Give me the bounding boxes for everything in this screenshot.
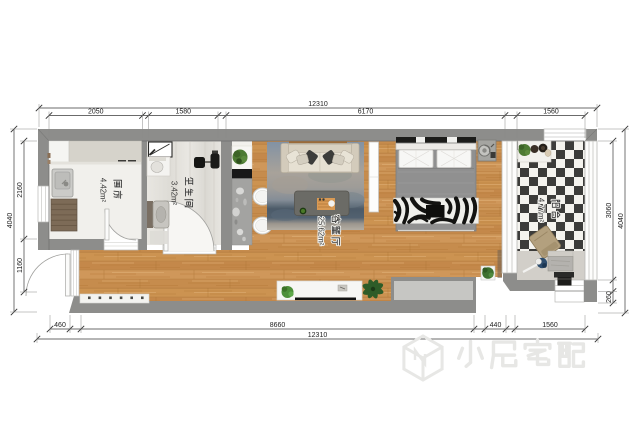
svg-text:460: 460 <box>54 322 66 329</box>
svg-text:260: 260 <box>606 291 613 303</box>
svg-text:4.77m²: 4.77m² <box>537 198 546 223</box>
svg-text:440: 440 <box>490 322 502 329</box>
svg-text:3060: 3060 <box>606 203 613 219</box>
svg-text:2050: 2050 <box>88 108 104 115</box>
svg-text:25.62m²: 25.62m² <box>317 217 326 246</box>
svg-text:3.42m²: 3.42m² <box>170 181 179 206</box>
svg-text:4040: 4040 <box>7 213 14 229</box>
svg-text:1580: 1580 <box>175 108 191 115</box>
svg-text:1160: 1160 <box>17 258 24 273</box>
svg-text:12310: 12310 <box>308 332 328 339</box>
svg-text:6170: 6170 <box>358 108 374 115</box>
svg-text:4040: 4040 <box>618 213 625 229</box>
svg-text:12310: 12310 <box>308 101 328 108</box>
svg-text:8660: 8660 <box>270 322 286 329</box>
svg-text:1560: 1560 <box>543 108 559 115</box>
svg-text:4.42m²: 4.42m² <box>99 178 108 203</box>
svg-text:1560: 1560 <box>542 322 558 329</box>
svg-text:2160: 2160 <box>17 182 24 198</box>
